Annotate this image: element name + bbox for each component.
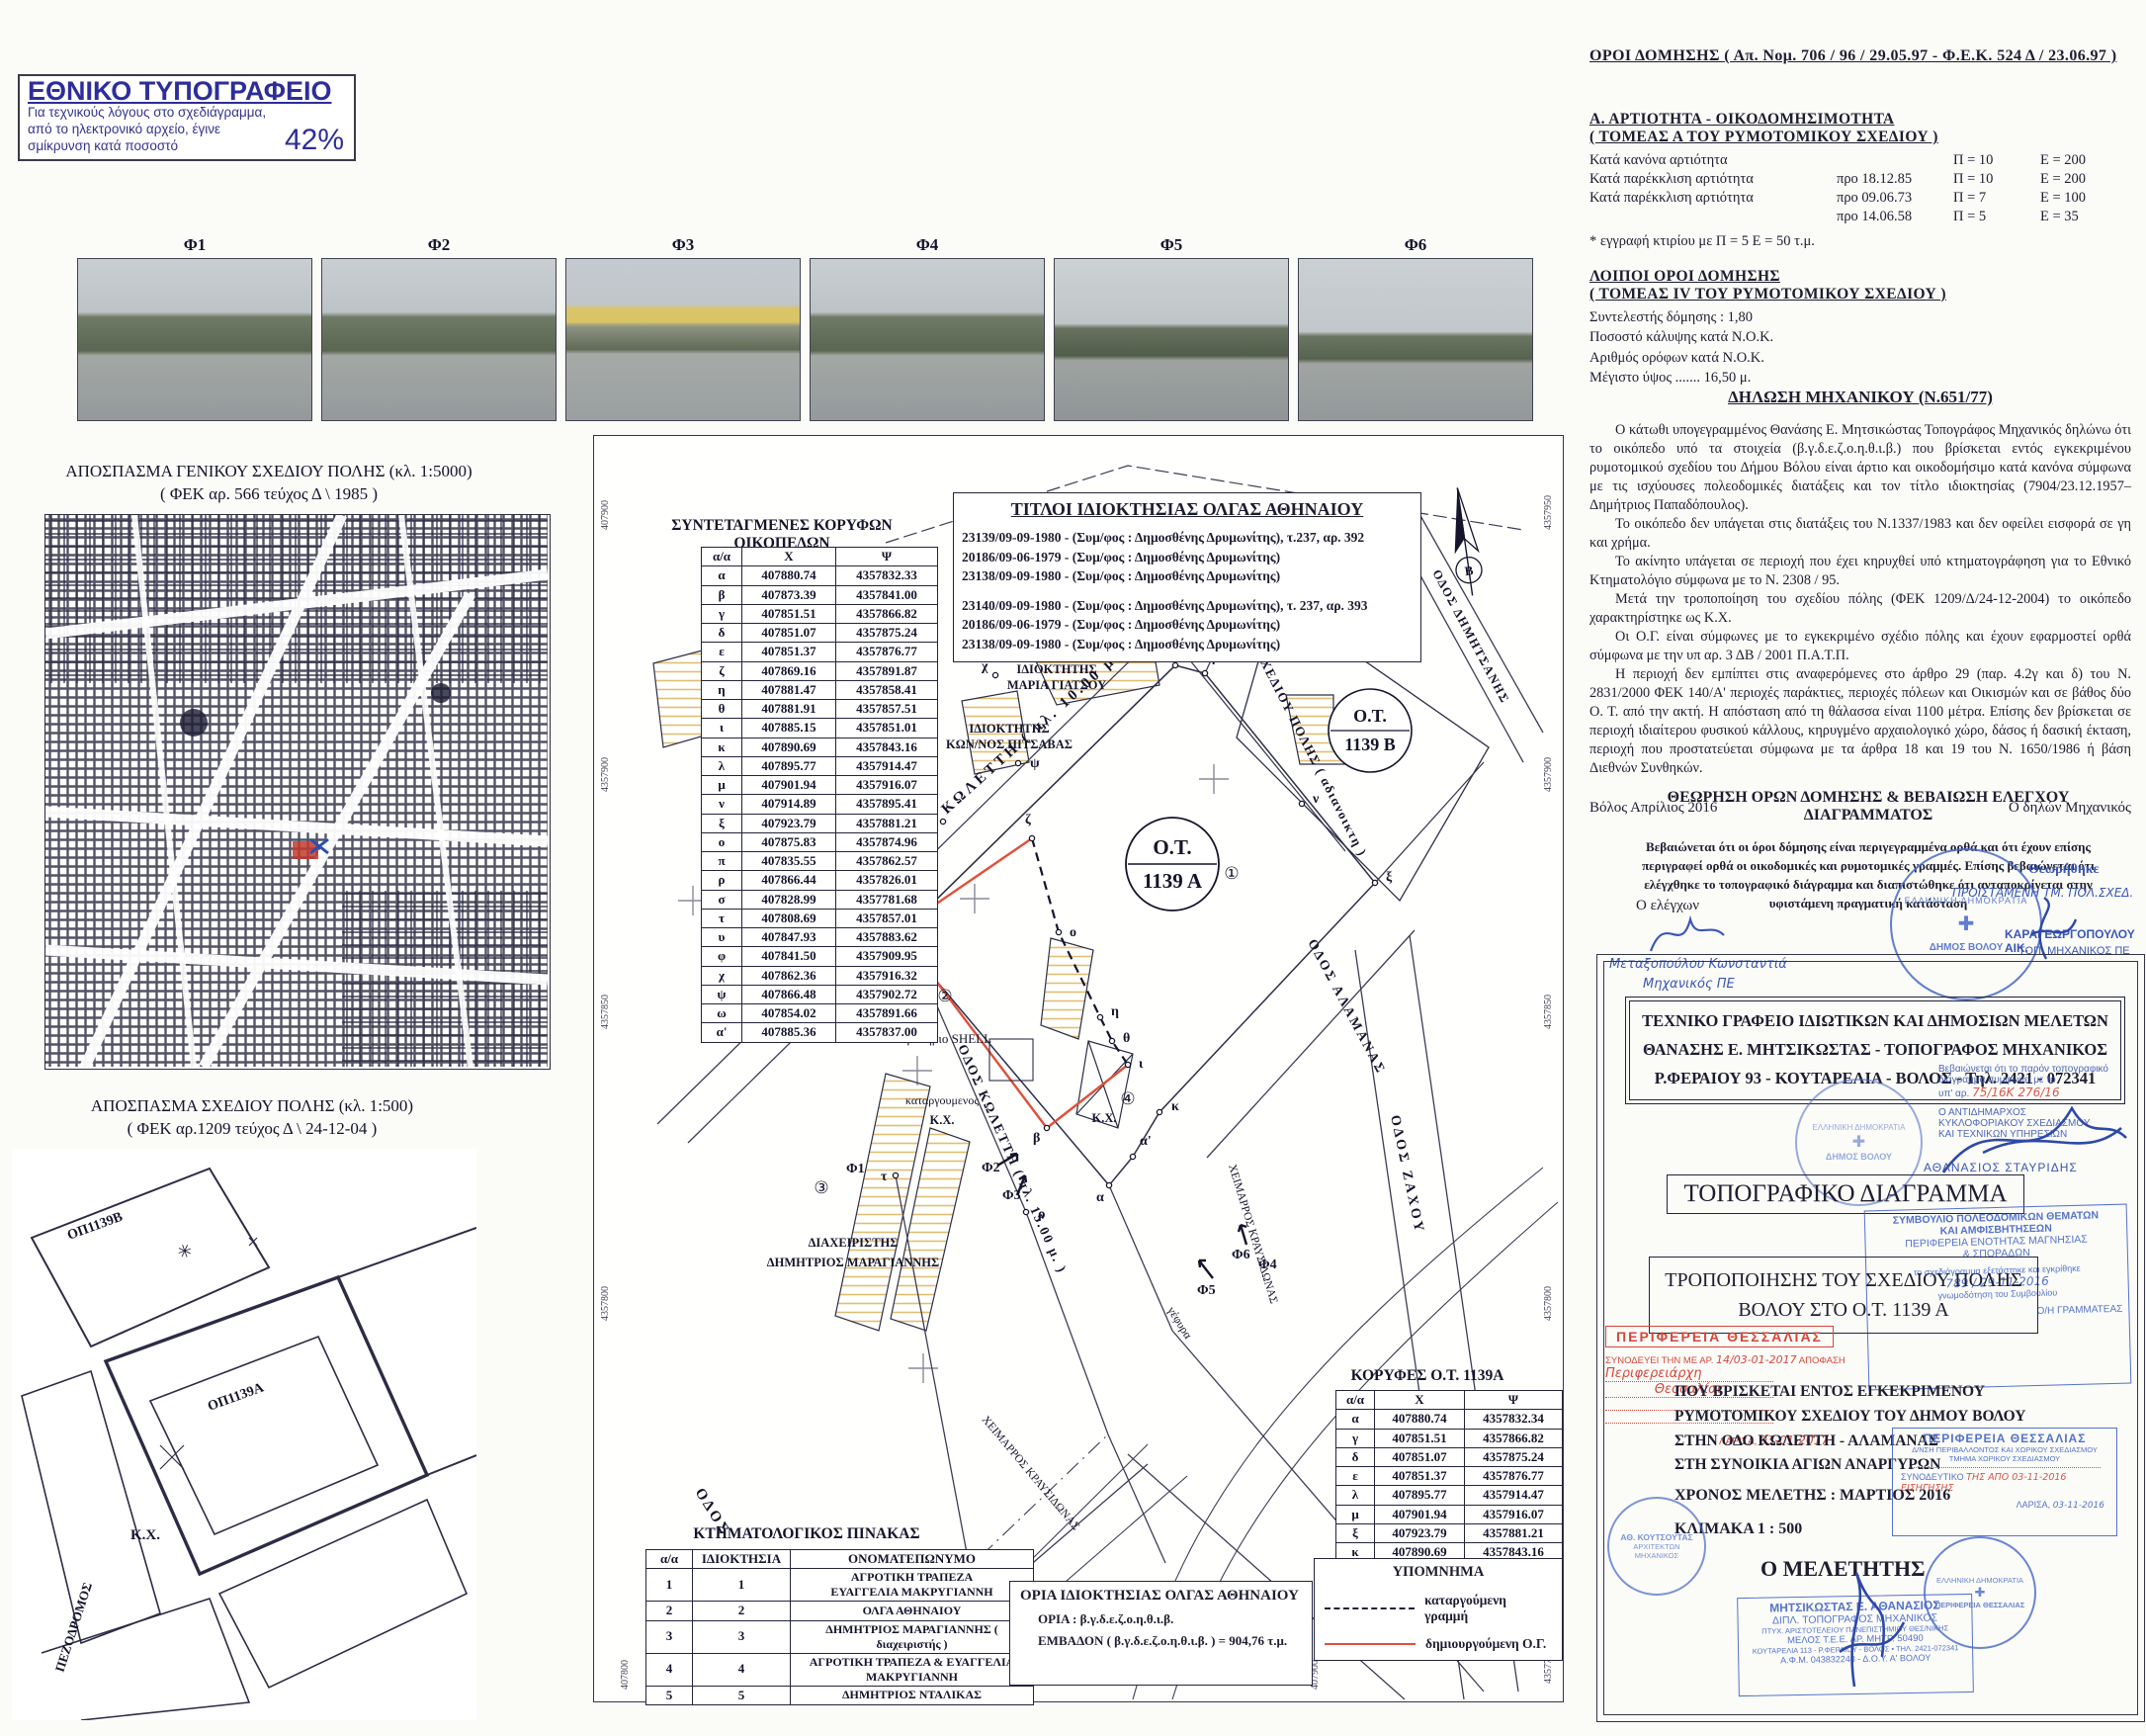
coords-row: ρ407866.444357826.01 [702,871,938,890]
perifereia-stamp: ΕΛΛΗΝΙΚΗ ΔΗΜΟΚΡΑΤΙΑ ✚ ΠΕΡΙΦΕΡΕΙΑ ΘΕΣΣΑΛΙ… [1924,1536,2036,1649]
cadastre-row: 22 ΟΛΓΑ ΑΘΗΝΑΙΟΥ [646,1602,1034,1620]
svg-text:ν: ν [1312,792,1320,807]
site-photo-strip: Φ1 Φ2 Φ3 Φ4 Φ5 Φ6 [77,235,1550,421]
coords-row: ν407914.894357895.41 [702,795,938,814]
svg-text:ψ: ψ [1030,756,1040,771]
cadastre-row: 44 ΑΓΡΟΤΙΚΗ ΤΡΑΠΕΖΑ & ΕΥΑΓΓΕΛΙΑ ΜΑΚΡΥΓΙΑ… [646,1653,1034,1686]
svg-text:4357850: 4357850 [600,995,611,1029]
dilosi-paragraph: Η περιοχή δεν εμπίπτει στις αναφερόμενες… [1589,665,2131,778]
oria-title: ΟΡΙΑ ΙΔΙΟΚΤΗΣΙΑΣ ΟΛΓΑΣ ΑΘΗΝΑΙΟΥ [1020,1588,1302,1605]
study-time: ΧΡΟΝΟΣ ΜΕΛΕΤΗΣ : ΜΑΡΤΙΟΣ 2016 [1674,1487,1950,1505]
kx-row: α407880.744357832.34 [1336,1410,1563,1429]
street-koletti15: ΟΔΟΣ ΚΩΛΕΤΤΗ ( πλ. 15.00 μ. ) [955,1042,1070,1275]
svg-text:ι: ι [1139,1057,1144,1072]
svg-text:②: ② [937,987,952,1006]
coords-col-aa: α/α [702,548,742,566]
svg-text:Κ.Χ.: Κ.Χ. [1092,1111,1117,1125]
kx-table-title: ΚΟΡΥΦΕΣ Ο.Τ. 1139Α [1324,1367,1531,1385]
coords-row: τ407808.694357857.01 [702,909,938,927]
kx-col-y: Ψ [1465,1391,1563,1410]
svg-text:ΔΗΜΗΤΡΙΟΣ ΜΑΡΑΓΙΑΝΝΗΣ: ΔΗΜΗΤΡΙΟΣ ΜΑΡΑΓΙΑΝΝΗΣ [767,1256,939,1269]
coords-row: ο407875.834357874.96 [702,832,938,851]
ownership-titles-title: ΤΙΤΛΟΙ ΙΔΙΟΚΤΗΣΙΑΣ ΟΛΓΑΣ ΑΘΗΝΑΙΟΥ [962,499,1413,520]
scanned-topographic-diagram: { "shrink_note": { "title": "ΕΘΝΙΚΟ ΤΥΠΟ… [0,0,2146,1736]
cadastre-row: 11 ΑΓΡΟΤΙΚΗ ΤΡΑΠΕΖΑ ΕΥΑΓΓΕΛΙΑ ΜΑΚΡΥΓΙΑΝΝ… [646,1569,1034,1602]
kx-row: δ407851.074357875.24 [1336,1447,1563,1466]
svg-text:ο: ο [1070,925,1076,940]
photo-image [77,258,312,421]
dilosi-title: ΔΗΛΩΣΗ ΜΗΧΑΝΙΚΟΥ (Ν.651/77) [1589,388,2131,407]
svg-text:κ: κ [1171,1099,1179,1114]
survey-drawing-frame: Ο.Τ. 1139 Α Ο.Τ. 1139 Β ΟΔΟΣ ΚΩΛΕΤΤΗ ( π… [593,435,1564,1702]
city-plan-map-caption: ΑΠΟΣΠΑΣΜΑ ΣΧΕΔΙΟΥ ΠΟΛΗΣ (κλ. 1:500) ( ΦΕ… [44,1095,460,1141]
svg-text:B: B [1464,563,1475,578]
svg-text:①: ① [1224,864,1239,884]
map2-label-op1139b: ΟΠ1139Β [65,1210,125,1244]
loipoi-line: Αριθμός ορόφων κατά Ν.Ο.Κ. [1589,348,2143,368]
loipoi-h1: ΛΟΙΠΟΙ ΟΡΟΙ ΔΟΜΗΣΗΣ [1589,268,2143,286]
stream-label-1: ΧΕΙΜΑΡΡΟΣ ΚΡΑΥΣΙΔΩΝΑΣ [1226,1163,1279,1305]
svg-text:ΙΔΙΟΚΤΗΤΗΣ: ΙΔΙΟΚΤΗΤΗΣ [1016,662,1096,676]
coords-row: δ407851.074357875.24 [702,624,938,643]
ot-1139b-bubble: Ο.Τ. 1139 Β [1329,689,1412,772]
svg-text:η: η [1111,1004,1119,1019]
region-blue-line2: ΤΜΗΜΑ ΧΩΡΙΚΟΥ ΣΧΕΔΙΑΣΜΟΥ [1897,1454,2112,1463]
site-photo: Φ3 [565,235,801,421]
svg-text:407800: 407800 [620,1660,631,1690]
office-line1: ΤΕΧΝΙΚΟ ΓΡΑΦΕΙΟ ΙΔΙΩΤΙΚΩΝ ΚΑΙ ΔΗΜΟΣΙΩΝ Μ… [1630,1007,2120,1036]
svg-text:ΔΙΑΧΕΙΡΙΣΤΗΣ: ΔΙΑΧΕΙΡΙΣΤΗΣ [809,1236,899,1250]
svg-text:4357950: 4357950 [1543,495,1554,530]
svg-text:Ο.Τ.: Ο.Τ. [1353,706,1387,726]
kx-col-aa: α/α [1336,1391,1375,1410]
svg-text:③: ③ [814,1178,828,1198]
architect-stamp: ΑΘ. ΚΟΥΤΣΟΥΤΑΣ ΑΡΧΙΤΕΚΤΩΝ ΜΗΧΑΝΙΚΟΣ [1607,1497,1706,1596]
legend-box: ΥΠΟΜΝΗΜΑ καταργούμενη γραμμή δημιουργούμ… [1314,1558,1563,1661]
coords-col-y: Ψ [836,548,938,566]
north-arrow-icon: B [1444,486,1485,598]
title-block: ΤΕΧΝΙΚΟ ΓΡΑΦΕΙΟ ΙΔΙΩΤΙΚΩΝ ΚΑΙ ΔΗΜΟΣΙΩΝ Μ… [1596,954,2145,1722]
stream-label-2: ΧΕΙΜΑΡΡΟΣ ΚΡΑΥΣΙΔΩΝΑΣ [980,1414,1082,1532]
photo-image [321,258,557,421]
svg-text:ΚΩΝ/ΝΟΣ ΠΙΤΣΑΒΑΣ: ΚΩΝ/ΝΟΣ ΠΙΤΣΑΒΑΣ [946,738,1073,751]
dilosi-paragraph: Μετά την τροποποίηση του σχεδίου πόλης (… [1589,590,2131,628]
general-plan-map [44,514,551,1070]
dilosi-paragraph: Το οικόπεδο δεν υπάγεται στις διατάξεις … [1589,515,2131,553]
region-blue-title: ΠΕΡΙΦΕΡΕΙΑ ΘΕΣΣΑΛΙΑΣ [1897,1432,2112,1445]
coords-row: σ407828.994357781.68 [702,890,938,909]
coords-row: β407873.394357841.00 [702,585,938,604]
shrink-note-line1: Για τεχνικούς λόγους στο σχεδιάγραμμα, [28,105,346,122]
ownership-title-line: 23140/09-09-1980 - (Συμ/φος : Δημοσθένης… [962,596,1413,616]
coords-row: ψ407866.484357902.72 [702,985,938,1003]
svg-text:Φ6: Φ6 [1232,1248,1250,1262]
coords-row: φ407841.504357909.95 [702,947,938,966]
loipoi-line: Μέγιστο ύψος ....... 16,50 μ. [1589,368,2143,388]
site-photo: Φ5 [1054,235,1289,421]
map2-label-op1139a: ΟΠ1139Α [206,1380,267,1415]
svg-text:✳: ✳ [175,1240,196,1263]
region-red-number: 14/03-01-2017 [1716,1353,1797,1366]
svg-text:4357850: 4357850 [1543,995,1554,1029]
svg-text:Φ2: Φ2 [982,1161,1000,1175]
ownership-title-line: 23139/09-09-1980 - (Συμ/φος : Δημοσθένης… [962,528,1413,548]
dilosi-paragraph: Ο κάτωθι υπογεγραμμένος Θανάσης Ε. Μητσι… [1589,421,2131,515]
svg-text:④: ④ [1120,1089,1135,1109]
sub-title-box: ΤΡΟΠΟΠΟΙΗΣΗΣ ΤΟΥ ΣΧΕΔΙΟΥ ΠΟΛΗΣ ΒΟΛΟΥ ΣΤΟ… [1649,1257,2038,1334]
coords-row: α407880.744357832.33 [702,566,938,585]
shrink-percent: 42% [285,124,344,157]
loipoi-line: Ποσοστό κάλυψης κατά Ν.Ο.Κ. [1589,327,2143,347]
svg-text:Φ1: Φ1 [846,1162,865,1176]
cadastre-title: ΚΤΗΜΑΤΟΛΟΓΙΚΟΣ ΠΙΝΑΚΑΣ [644,1525,970,1543]
coords-row: ω407854.024357891.66 [702,1004,938,1023]
photo-label: Φ3 [565,235,801,255]
city-plan-map: ✳ ΟΠ1139Β ΟΠ1139Α Κ.Χ. ΠΕΖΟΔΡΟΜΟΣ [12,1149,476,1720]
cadastre-row: 55 ΔΗΜΗΤΡΙΟΣ ΝΤΑΛΙΚΑΣ [646,1686,1034,1704]
site-photo: Φ4 [810,235,1045,421]
coords-row: ε407851.374357876.77 [702,643,938,661]
svg-text:ρ: ρ [1038,1207,1046,1222]
red-line-sample [1325,1643,1416,1645]
oroi-sectionA-h1: Α. ΑΡΤΙΟΤΗΤΑ - ΟΙΚΟΔΟΜΗΣΙΜΟΤΗΤΑ [1589,111,2143,129]
photo-image [565,258,801,421]
oria-line2: ΕΜΒΑΔΟΝ ( β.γ.δ.ε.ζ.ο.η.θ.ι.β. ) = 904,7… [1038,1633,1302,1649]
legend-title: ΥΠΟΜΝΗΜΑ [1325,1564,1552,1581]
svg-text:4357900: 4357900 [1543,757,1554,792]
coords-row: ι407885.154357851.01 [702,719,938,738]
coords-row: α'407885.364357837.00 [702,1023,938,1042]
region-red-title: ΠΕΡΙΦΕΡΕΙΑ ΘΕΣΣΑΛΙΑΣ [1605,1326,1834,1347]
coords-col-x: X [742,548,836,566]
national-printing-note: ΕΘΝΙΚΟ ΤΥΠΟΓΡΑΦΕΙΟ Για τεχνικούς λόγους … [18,74,356,161]
street-zaxou: ΟΔΟΣ ΖΑΧΟΥ [1387,1114,1426,1236]
ownership-title-line: 23138/09-09-1980 - (Συμ/φος : Δημοσθένης… [962,566,1413,586]
svg-text:1139 Β: 1139 Β [1344,735,1396,754]
coords-table: α/α X Ψ α407880.744357832.33 β407873.394… [701,547,938,1043]
city-plan-caption-line2: ( ΦΕΚ αρ.1209 τεύχος Δ \ 24-12-04 ) [44,1118,460,1141]
coords-row: υ407847.934357883.62 [702,928,938,947]
map-general-caption-line1: ΑΠΟΣΠΑΣΜΑ ΓΕΝΙΚΟΥ ΣΧΕΔΙΟΥ ΠΟΛΗΣ (κλ. 1:5… [61,461,476,483]
photo-label: Φ2 [321,235,557,255]
oroi-sectionA-h2: ( ΤΟΜΕΑΣ Α ΤΟΥ ΡΥΜΟΤΟΜΙΚΟΥ ΣΧΕΔΙΟΥ ) [1589,129,2143,146]
antidimarxos-name: ΑΘΑΝΑΣΙΟΣ ΣΤΑΥΡΙΔΗΣ [1924,1161,2078,1174]
cert-line1: Βεβαιώνεται ότι το παρόν τοπογραφικό [1938,1064,2136,1075]
svg-text:ξ: ξ [1386,870,1393,885]
kx-row: γ407851.514357866.82 [1336,1429,1563,1447]
photo-image [810,258,1045,421]
photo-label: Φ1 [77,235,312,255]
general-plan-map-art [45,515,548,1067]
coords-row: μ407901.944357916.07 [702,776,938,795]
oroi-header: ΟΡΟΙ ΔΟΜΗΣΗΣ ( Απ. Νομ. 706 / 96 / 29.05… [1589,47,2143,65]
ownership-title-line: 20186/09-06-1979 - (Συμ/φος : Δημοσθένης… [962,615,1413,635]
meletitis-signature [1795,1563,1914,1692]
map-general-caption: ΑΠΟΣΠΑΣΜΑ ΓΕΝΙΚΟΥ ΣΧΕΔΙΟΥ ΠΟΛΗΣ (κλ. 1:5… [61,461,476,506]
svg-text:407900: 407900 [600,500,611,530]
ownership-title-line: 20186/09-06-1979 - (Συμ/φος : Δημοσθένης… [962,548,1413,567]
svg-text:1139 Α: 1139 Α [1143,869,1203,893]
site-photo: Φ6 [1298,235,1533,421]
photo-label: Φ6 [1298,235,1533,255]
stamp2-ring: ΕΛΛΗΝΙΚΗ ΔΗΜΟΚΡΑΤΙΑ [1813,1123,1906,1132]
office-line2: ΘΑΝΑΣΗΣ Ε. ΜΗΤΣΙΚΩΣΤΑΣ - ΤΟΠΟΓΡΑΦΟΣ ΜΗΧΑ… [1630,1036,2120,1065]
svg-text:Ο.Τ.: Ο.Τ. [1153,835,1191,859]
region-blue-date: 03-11-2016 [2053,1501,2104,1511]
svg-text:α': α' [1140,1134,1152,1149]
oria-line1: ΟΡΙΑ : β.γ.δ.ε.ζ.ο.η.θ.ι.β. [1038,1611,1302,1627]
engineer-declaration: ΔΗΛΩΣΗ ΜΗΧΑΝΙΚΟΥ (Ν.651/77) Ο κάτωθι υπο… [1589,388,2131,817]
svg-text:ΜΑΡΙΑ ΓΙΑΤΣΟΥ: ΜΑΡΙΑ ΓΙΑΤΣΟΥ [1007,678,1106,692]
region-blue-line3: ΣΥΝΟΔΕΥΤΙΚΟ [1901,1472,1964,1482]
street-alamanas: ΟΔΟΣ ΑΛΑΜΑΝΑΣ [1305,936,1389,1077]
ot-1139a-bubble: Ο.Τ. 1139 Α [1126,818,1219,911]
map2-label-pezodromos: ΠΕΖΟΔΡΟΜΟΣ [52,1581,95,1674]
main-title: ΤΟΠΟΓΡΑΦΙΚΟ ΔΙΑΓΡΑΜΜΑ [1683,1180,2007,1207]
dilosi-paragraph: Οι Ο.Γ. είναι σύμφωνες με το εγκεκριμένο… [1589,628,2131,665]
region-red-line1: ΣΥΝΟΔΕΥΕΙ ΤΗΝ ΜΕ ΑΡ. [1605,1355,1713,1366]
kx-row: λ407895.774357914.47 [1336,1486,1563,1505]
coords-row: γ407851.514357866.82 [702,604,938,623]
dashed-line-sample [1325,1607,1415,1609]
sub-title-line1: ΤΡΟΠΟΠΟΙΗΣΗΣ ΤΟΥ ΣΧΕΔΙΟΥ ΠΟΛΗΣ [1650,1265,2037,1295]
svg-text:ζ: ζ [1025,813,1031,827]
site-photo: Φ2 [321,235,557,421]
svg-text:4357800: 4357800 [1543,1286,1554,1321]
region-blue-stamp: ΠΕΡΙΦΕΡΕΙΑ ΘΕΣΣΑΛΙΑΣ Δ/ΝΣΗ ΠΕΡΙΒΑΛΛΟΝΤΟΣ… [1892,1428,2117,1536]
photo-label: Φ4 [810,235,1045,255]
svg-text:καταργουμενος: καταργουμενος [905,1093,979,1107]
theorisi-title: ΘΕΩΡΗΣΗ ΟΡΩΝ ΔΟΜΗΣΗΣ & ΒΕΒΑΙΩΣΗ ΕΛΕΓΧΟΥ … [1621,789,2115,825]
location-line: ΡΥΜΟΤΟΜΙΚΟΥ ΣΧΕΔΙΟΥ ΤΟΥ ΔΗΜΟΥ ΒΟΛΟΥ [1674,1405,2050,1430]
shrink-note-title: ΕΘΝΙΚΟ ΤΥΠΟΓΡΑΦΕΙΟ [28,78,346,105]
kx-table: α/α X Ψ α407880.744357832.34 γ407851.514… [1335,1390,1563,1582]
region-blue-city: ΛΑΡΙΣΑ, [2017,1500,2051,1510]
coords-row: ζ407869.164357891.87 [702,661,938,680]
map2-label-kx: Κ.Χ. [130,1527,160,1543]
svg-text:Κ.Χ.: Κ.Χ. [930,1113,955,1127]
svg-text:τ: τ [881,1170,888,1184]
photo-label: Φ5 [1054,235,1289,255]
kx-row: ξ407923.794357881.21 [1336,1523,1563,1542]
stamp2-center: ΔΗΜΟΣ ΒΟΛΟΥ [1813,1152,1906,1162]
map-general-caption-line2: ( ΦΕΚ αρ. 566 τεύχος Δ \ 1985 ) [61,483,476,506]
city-plan-caption-line1: ΑΠΟΣΠΑΣΜΑ ΣΧΕΔΙΟΥ ΠΟΛΗΣ (κλ. 1:500) [44,1095,460,1118]
architect-l1: ΑΘ. ΚΟΥΤΣΟΥΤΑΣ [1620,1532,1692,1542]
svg-text:ΙΔΙΟΚΤΗΤΗΣ: ΙΔΙΟΚΤΗΤΗΣ [969,722,1049,736]
oroi-note: * εγγραφή κτιρίου με Π = 5 Ε = 50 τ.μ. [1589,233,2143,250]
legend-red-row: δημιουργούμενη Ο.Γ. [1325,1636,1552,1652]
sub-title-line2: ΒΟΛΟΥ ΣΤΟ Ο.Τ. 1139 Α [1650,1295,2037,1325]
approved-label: Θεωρήθηκε [2028,862,2100,878]
cadastre-col-name: ΟΝΟΜΑΤΕΠΩΝΥΜΟ [791,1550,1034,1569]
perifereia-ring2: ΠΕΡΙΦΕΡΕΙΑ ΘΕΣΣΑΛΙΑΣ [1935,1601,2025,1609]
ownership-titles-box: ΤΙΤΛΟΙ ΙΔΙΟΚΤΗΣΙΑΣ ΟΛΓΑΣ ΑΘΗΝΑΙΟΥ 23139/… [953,492,1421,662]
site-photo: Φ1 [77,235,312,421]
coords-row: ξ407923.794357881.21 [702,814,938,832]
cadastre-col-own: ΙΔΙΟΚΤΗΣΙΑ [693,1550,791,1569]
photo-image [1054,258,1289,421]
svg-text:4357900: 4357900 [600,757,611,792]
svg-text:Φ4: Φ4 [1258,1258,1277,1272]
building-terms-section: ΟΡΟΙ ΔΟΜΗΣΗΣ ( Απ. Νομ. 706 / 96 / 29.05… [1589,47,2143,388]
perifereia-ring1: ΕΛΛΗΝΙΚΗ ΔΗΜΟΚΡΑΤΙΑ [1935,1576,2025,1585]
location-line: ΠΟΥ ΒΡΙΣΚΕΤΑΙ ΕΝΤΟΣ ΕΓΚΕΚΡΙΜΕΝΟΥ [1674,1380,2050,1405]
dilosi-paragraph: Το ακίνητο υπάγεται σε περιοχή που έχει … [1589,553,2131,590]
coords-row: λ407895.774357914.47 [702,756,938,775]
kx-row: μ407901.944357916.07 [1336,1505,1563,1523]
kx-row: ε407851.374357876.77 [1336,1467,1563,1486]
checker-signature [1641,902,1730,961]
architect-l3: ΜΗΧΑΝΙΚΟΣ [1620,1551,1692,1560]
legend-dashed-label: καταργούμενη γραμμή [1424,1593,1552,1624]
ownership-title-line: 23138/09-09-1980 - (Συμ/φος : Δημοσθένης… [962,635,1413,654]
legend-red-label: δημιουργούμενη Ο.Γ. [1425,1636,1546,1652]
coords-row: κ407890.694357843.16 [702,738,938,756]
svg-text:4357800: 4357800 [600,1286,611,1321]
photo-image [1298,258,1533,421]
coords-row: η407881.474357858.41 [702,680,938,699]
svg-text:α: α [1096,1190,1104,1205]
city-plan-map-art: ✳ ΟΠ1139Β ΟΠ1139Α Κ.Χ. ΠΕΖΟΔΡΟΜΟΣ [12,1149,476,1720]
region-blue-line1: Δ/ΝΣΗ ΠΕΡΙΒΑΛΛΟΝΤΟΣ ΚΑΙ ΧΩΡΙΚΟΥ ΣΧΕΔΙΑΣΜ… [1897,1445,2112,1454]
architect-l2: ΑΡΧΙΤΕΚΤΩΝ [1620,1542,1692,1551]
coords-row: χ407862.364357916.32 [702,966,938,985]
svg-text:β: β [1033,1131,1040,1146]
cadastre-table: α/α ΙΔΙΟΚΤΗΣΙΑ ΟΝΟΜΑΤΕΠΩΝΥΜΟ 11 ΑΓΡΟΤΙΚΗ… [645,1549,1034,1705]
svg-text:θ: θ [1123,1031,1130,1046]
kx-col-x: X [1375,1391,1465,1410]
loipoi-line: Συντελεστής δόμησης : 1,80 [1589,307,2143,327]
cadastre-row: 33 ΔΗΜΗΤΡΙΟΣ ΜΑΡΑΓΙΑΝΝΗΣ ( διαχειριστής … [646,1620,1034,1653]
svg-text:Φ5: Φ5 [1197,1283,1216,1298]
cadastre-col-aa: α/α [646,1550,693,1569]
legend-dashed-row: καταργούμενη γραμμή [1325,1593,1552,1624]
loipoi-h2: ( ΤΟΜΕΑΣ IV ΤΟΥ ΡΥΜΟΤΟΜΙΚΟΥ ΣΧΕΔΙΟΥ ) [1589,286,2143,304]
coords-row: θ407881.914357857.51 [702,700,938,719]
coords-row: π407835.554357862.57 [702,852,938,871]
property-limits-box: ΟΡΙΑ ΙΔΙΟΚΤΗΣΙΑΣ ΟΛΓΑΣ ΑΘΗΝΑΙΟΥ ΟΡΙΑ : β… [1009,1581,1313,1686]
region-red-line1b: ΑΠΟΦΑΣΗ [1799,1355,1846,1366]
